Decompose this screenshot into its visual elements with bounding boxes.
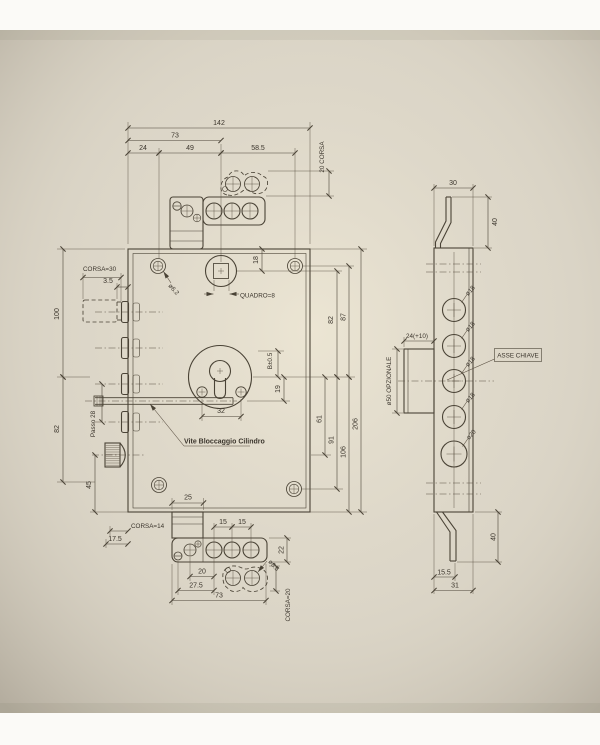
dim-58-5: 58.5 xyxy=(251,145,265,152)
photo-of-technical-drawing: 142 73 24 49 58.5 20 CORSA 18 82 87 61 9… xyxy=(0,0,600,745)
cross-screw-icon xyxy=(224,542,240,558)
dim-106: 106 xyxy=(341,446,348,458)
dim-100: 100 xyxy=(54,308,61,320)
cross-screw-icon xyxy=(181,205,193,217)
dim-45: 45 xyxy=(86,481,93,489)
dim-27-5: 27.5 xyxy=(189,583,203,590)
dim-40-bottom: 40 xyxy=(491,533,498,541)
dim-82-right: 82 xyxy=(328,316,335,324)
dim-20: 20 xyxy=(198,569,206,576)
cross-screw-icon xyxy=(245,571,260,586)
dim-15-b: 15 xyxy=(238,519,246,526)
label-quadro: QUADRO=8 xyxy=(240,293,275,300)
cross-screw-icon xyxy=(184,544,196,556)
label-asse-chiave: ASSE CHIAVE xyxy=(497,353,539,360)
cross-screw-icon xyxy=(206,542,222,558)
dim-49: 49 xyxy=(186,145,194,152)
dim-corsa30: CORSA=30 xyxy=(83,266,117,273)
dim-73-top: 73 xyxy=(171,133,179,140)
dim-40-top: 40 xyxy=(492,218,499,226)
dim-15-5: 15.5 xyxy=(437,570,451,577)
cross-screw-icon xyxy=(242,203,258,219)
cross-screw-icon xyxy=(245,177,260,192)
label-vite-bloccaggio: Vite Bloccaggio Cilindro xyxy=(184,439,265,446)
cross-screw-icon xyxy=(206,203,222,219)
dim-corsa20-bottom: CORSA=20 xyxy=(285,588,292,622)
dim-24-plus10: 24(+10) xyxy=(406,333,428,340)
dim-31: 31 xyxy=(451,583,459,590)
dim-15-a: 15 xyxy=(219,519,227,526)
dim-61: 61 xyxy=(317,415,324,423)
dim-91: 91 xyxy=(329,436,336,444)
label-phi50-opzionale: ø50 OPZIONALE xyxy=(386,357,393,406)
dim-87: 87 xyxy=(341,313,348,321)
cross-screw-icon xyxy=(193,214,201,222)
dim-82-left: 82 xyxy=(54,425,61,433)
dim-17-5: 17.5 xyxy=(108,536,122,543)
dim-30: 30 xyxy=(449,180,457,187)
dim-22: 22 xyxy=(279,546,286,554)
dim-19: 19 xyxy=(275,385,282,393)
cross-screw-icon xyxy=(243,542,259,558)
cross-screw-icon xyxy=(224,203,240,219)
dim-3-5: 3.5 xyxy=(103,278,113,285)
dim-corsa14: CORSA=14 xyxy=(131,523,165,530)
dim-18: 18 xyxy=(253,256,260,264)
dim-25: 25 xyxy=(184,495,192,502)
cross-screw-icon xyxy=(195,541,201,547)
lock-technical-drawing: 142 73 24 49 58.5 20 CORSA 18 82 87 61 9… xyxy=(0,0,600,745)
dim-24: 24 xyxy=(139,145,147,152)
dim-corsa20-top: 20 CORSA xyxy=(319,141,326,173)
dim-206: 206 xyxy=(353,418,360,430)
dim-142: 142 xyxy=(213,120,225,127)
dim-73-bottom: 73 xyxy=(215,593,223,600)
dim-32: 32 xyxy=(217,408,225,415)
dim-passo-28: Passo 28 xyxy=(90,410,97,437)
paper-background xyxy=(0,30,600,713)
dim-b-tol: B±0.5 xyxy=(267,352,274,369)
